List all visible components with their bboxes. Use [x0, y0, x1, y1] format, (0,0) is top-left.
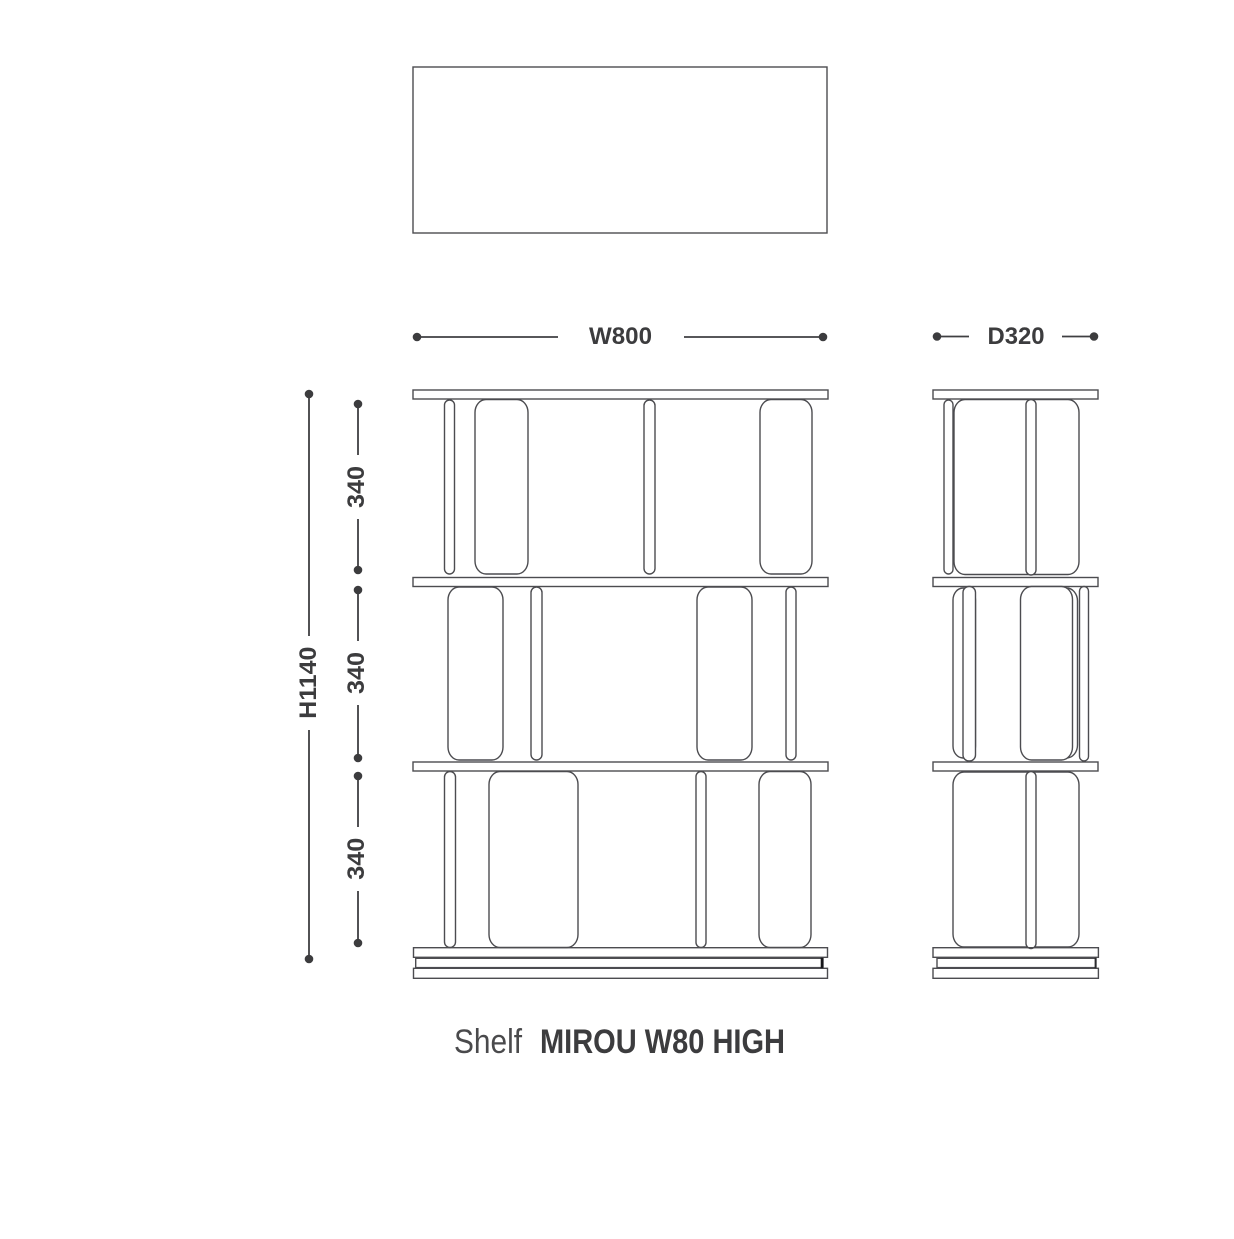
- svg-text:H1140: H1140: [295, 647, 322, 719]
- svg-text:W800: W800: [589, 323, 652, 350]
- svg-text:Shelf: Shelf: [454, 1023, 522, 1061]
- svg-text:D320: D320: [988, 323, 1045, 350]
- svg-text:MIROU W80 HIGH: MIROU W80 HIGH: [540, 1023, 785, 1061]
- svg-text:340: 340: [343, 466, 370, 508]
- svg-text:340: 340: [343, 652, 370, 694]
- svg-text:340: 340: [343, 838, 370, 880]
